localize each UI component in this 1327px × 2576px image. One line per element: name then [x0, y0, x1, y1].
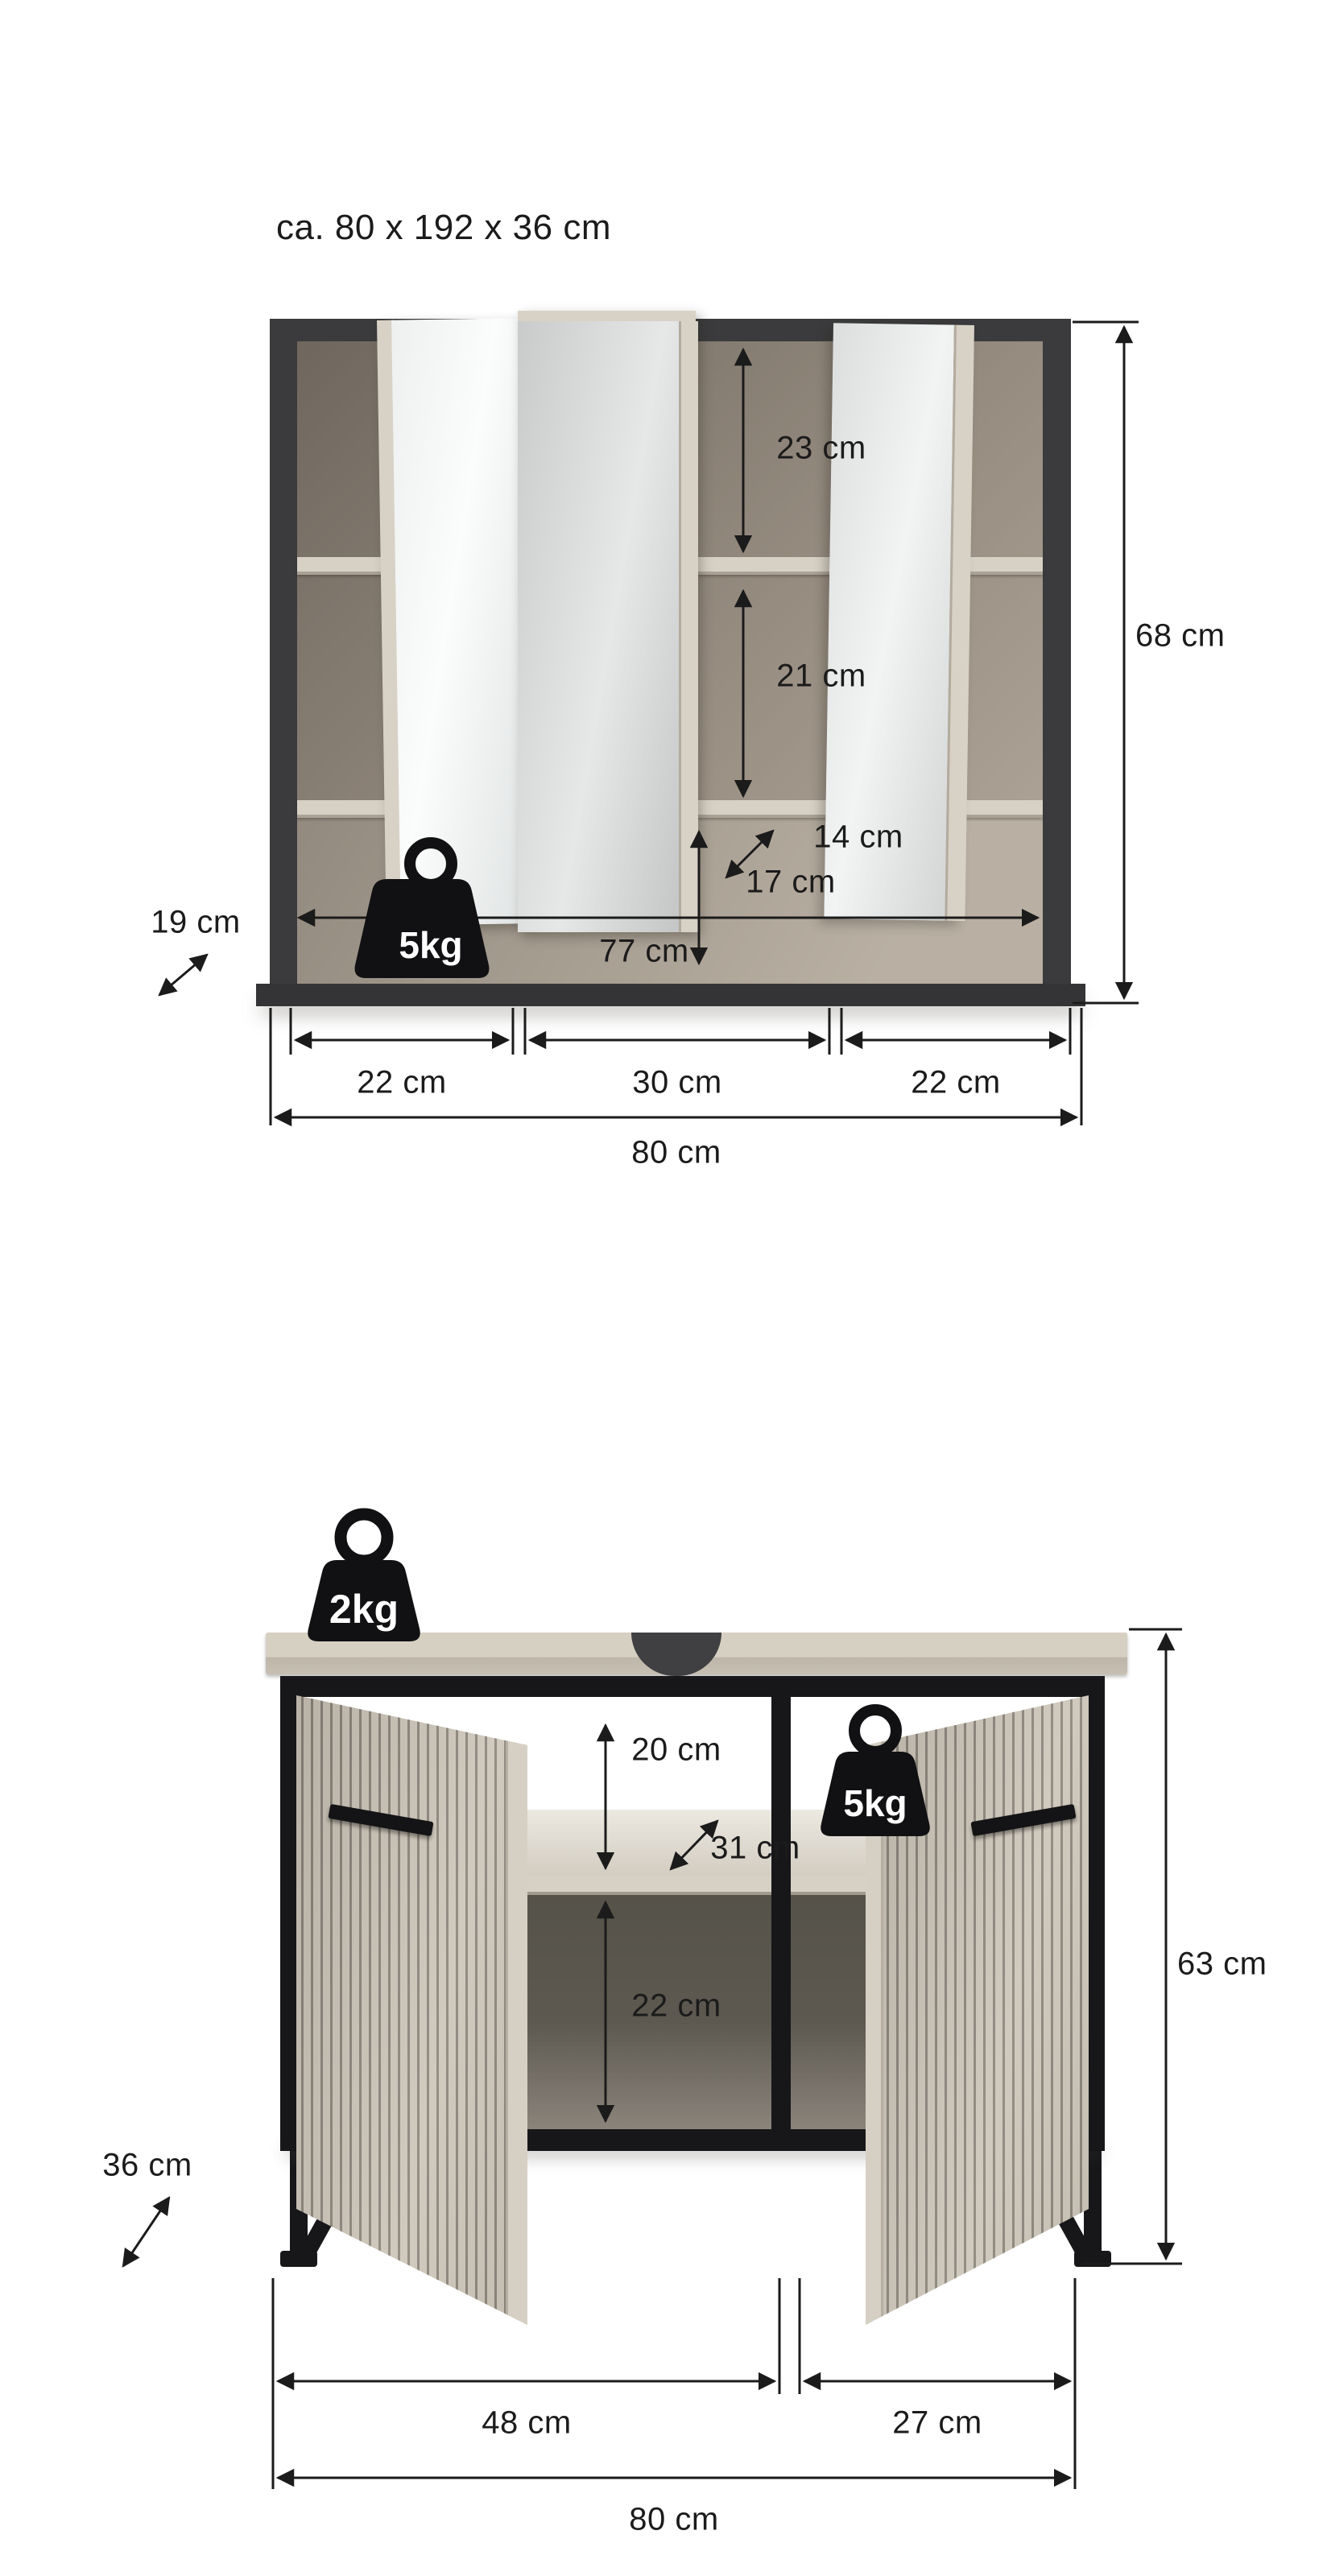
weight-label: 5kg	[399, 924, 462, 966]
dim-shelf-depth: 14 cm	[813, 819, 903, 856]
overall-dimensions-title: ca. 80 x 192 x 36 cm	[276, 208, 611, 248]
dim-open-shelf-height: 17 cm	[746, 865, 835, 901]
dim-cabinet-height: 68 cm	[1135, 618, 1225, 654]
dim-cabinet-depth: 19 cm	[151, 905, 240, 941]
dim-left-door-width: 48 cm	[482, 2405, 571, 2442]
weight-label: 5kg	[843, 1782, 907, 1824]
product-dimension-sheet: ca. 80 x 192 x 36 cm	[0, 0, 1327, 2576]
dim-left-section-width: 22 cm	[357, 1065, 446, 1101]
weight-5kg-inner-icon: 5kg	[800, 1702, 953, 1840]
dim-middle-section-width: 30 cm	[632, 1065, 721, 1101]
dim-vanity-total-width: 80 cm	[629, 2502, 718, 2538]
dim-middle-shelf-height: 21 cm	[776, 658, 866, 695]
dim-vanity-height: 63 cm	[1177, 1946, 1267, 1983]
dim-lower-niche-height: 22 cm	[631, 1988, 721, 2025]
dim-vanity-shelf-depth: 31 cm	[710, 1831, 800, 1867]
weight-label: 2kg	[329, 1587, 399, 1632]
weight-2kg-icon: 2kg	[283, 1504, 444, 1642]
dim-total-width: 80 cm	[631, 1135, 721, 1171]
dim-upper-niche-height: 20 cm	[631, 1732, 721, 1769]
dim-inner-width: 77 cm	[599, 934, 688, 970]
weight-5kg-icon: 5kg	[354, 837, 507, 984]
dim-right-door-width: 27 cm	[892, 2405, 982, 2442]
dimension-lines	[0, 0, 1327, 2576]
dim-right-section-width: 22 cm	[911, 1065, 1000, 1101]
dim-vanity-depth: 36 cm	[102, 2148, 192, 2184]
dim-upper-shelf-height: 23 cm	[776, 431, 866, 467]
